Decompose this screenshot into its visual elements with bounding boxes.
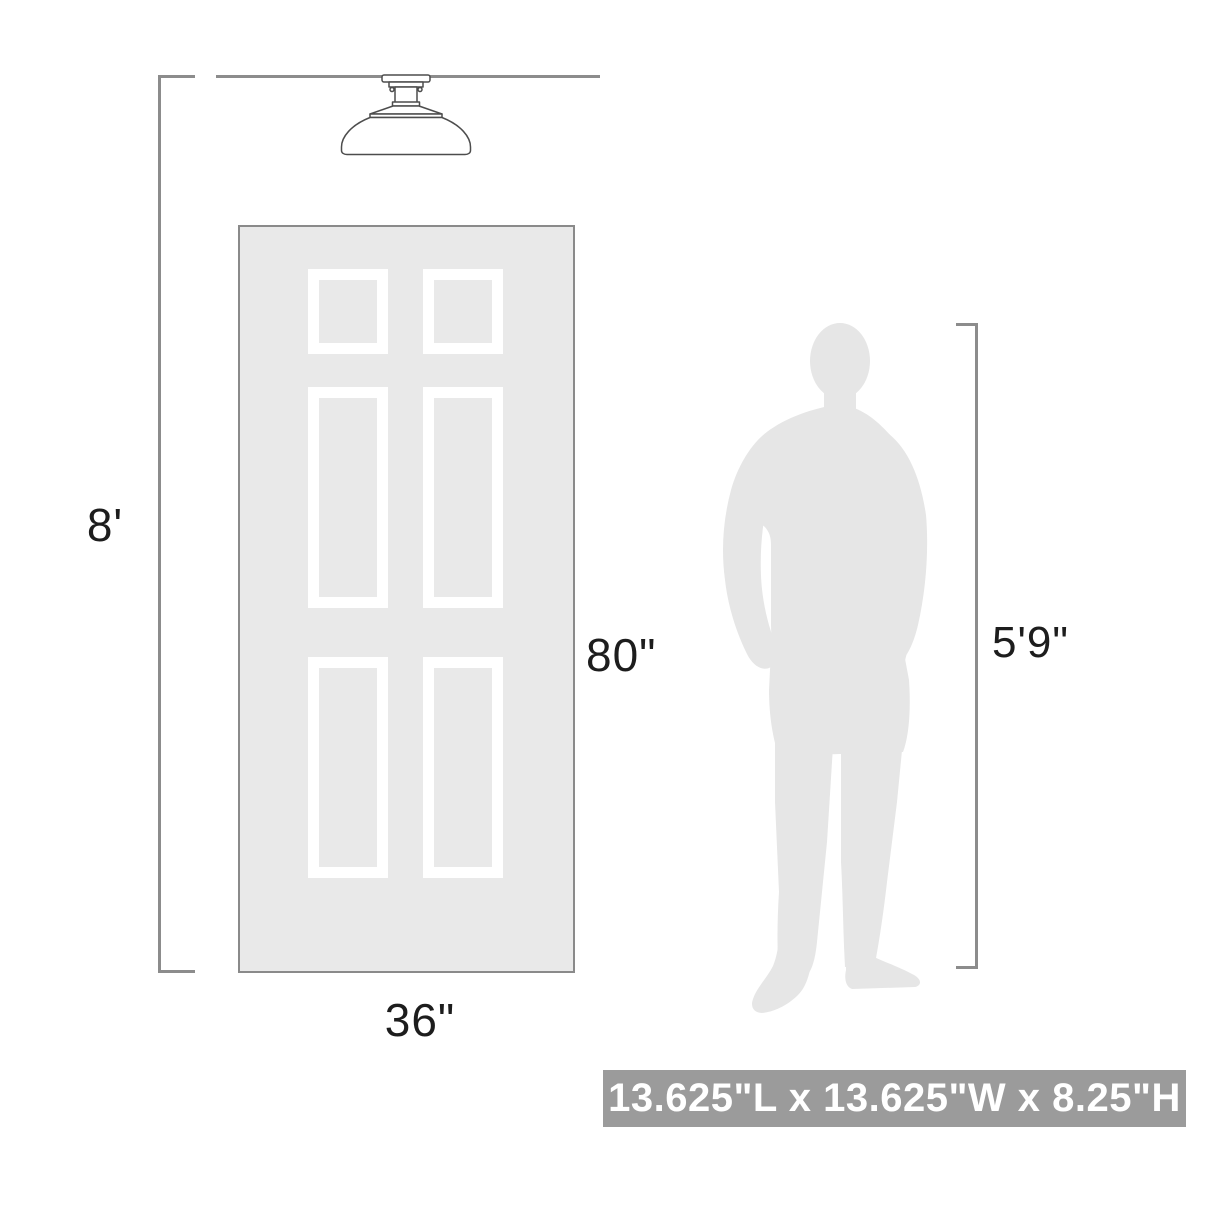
door-panel <box>308 269 388 354</box>
person-height-dimension-bracket <box>956 323 978 969</box>
door-icon <box>238 225 575 973</box>
person-height-label: 5'9" <box>992 618 1069 668</box>
person-silhouette-icon <box>713 322 937 1014</box>
scale-diagram: 8' 80" 36" 5'9" 1 <box>0 0 1214 1214</box>
door-panel <box>308 657 388 878</box>
product-dimensions-text: 13.625"L x 13.625"W x 8.25"H <box>608 1076 1181 1121</box>
ceiling-light-icon <box>336 72 476 158</box>
door-panel <box>423 269 503 354</box>
door-height-label: 80" <box>586 628 657 682</box>
door-width-label: 36" <box>355 993 485 1047</box>
ceiling-height-dimension-bracket <box>158 75 195 973</box>
ceiling-height-label: 8' <box>70 498 140 552</box>
door-panel <box>423 387 503 608</box>
door-panel <box>308 387 388 608</box>
door-panel <box>423 657 503 878</box>
product-dimensions-banner: 13.625"L x 13.625"W x 8.25"H <box>603 1070 1186 1127</box>
